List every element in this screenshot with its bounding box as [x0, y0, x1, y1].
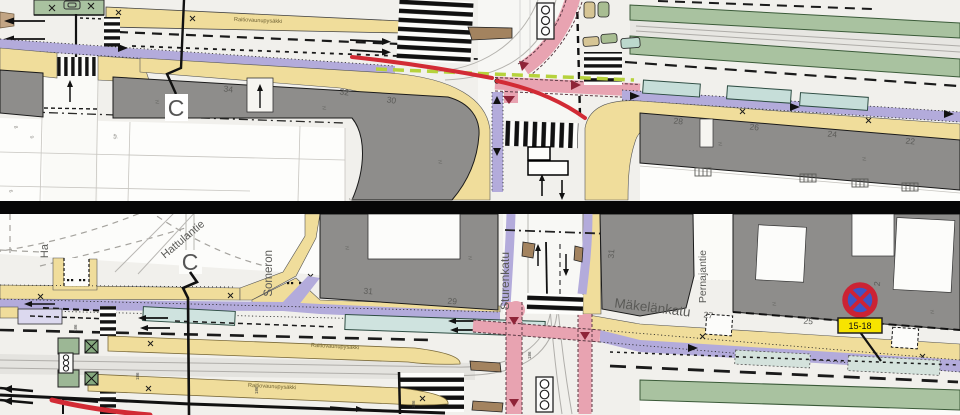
street-name: Ha: [39, 243, 51, 258]
building-number: 28: [673, 116, 684, 127]
lower-plan-canvas: Raitiovaunupysäkki Raitiovaunupysäkki: [0, 214, 960, 415]
car: [583, 36, 600, 46]
building-number: 25: [803, 316, 814, 327]
lower-plan-panel: Raitiovaunupysäkki Raitiovaunupysäkki: [0, 214, 960, 415]
courtyard: [368, 214, 460, 259]
traffic-light-icon: [536, 377, 553, 412]
building-number: 24: [827, 129, 838, 140]
crosswalk: [100, 306, 116, 336]
crosswalk-wide: [396, 0, 473, 64]
tree-icon: [85, 340, 98, 353]
panel-divider: [0, 201, 960, 214]
section-marker-letter: C: [182, 249, 199, 275]
street-name: Someron: [263, 250, 275, 297]
platform-ramp: [522, 242, 535, 258]
building-number: 30: [386, 94, 397, 105]
car: [584, 2, 595, 18]
crosswalk: [527, 293, 584, 315]
platform-ramp: [472, 401, 503, 412]
chainage-label: 186: [254, 386, 259, 394]
gateway-opening: [700, 119, 713, 147]
building-number: 29: [447, 296, 458, 307]
building-number: 22: [905, 136, 916, 147]
section-marker-letter: C: [168, 95, 185, 121]
courtyard: [893, 218, 955, 293]
upper-plan-canvas: Raitiovaunupysäkki: [0, 0, 960, 201]
platform-ramp: [468, 27, 512, 40]
traffic-light-icon: [537, 3, 554, 39]
street-name: Pernajantie: [697, 250, 709, 303]
street-address-number: 27: [703, 309, 714, 320]
upper-plan-panel: Raitiovaunupysäkki: [0, 0, 960, 201]
building-number: 32: [339, 86, 350, 97]
van: [621, 37, 641, 48]
crosswalk: [57, 57, 98, 76]
car: [598, 2, 609, 17]
courtyard: [852, 214, 894, 256]
chainage-label: 186: [411, 400, 416, 408]
platform-ramp: [574, 246, 583, 262]
platform-ramp: [470, 361, 501, 372]
crosswalk: [104, 17, 120, 51]
courtyard: [756, 225, 807, 282]
traffic-light-icon: [59, 353, 73, 373]
tree-icon: [85, 372, 98, 385]
crosswalk: [505, 121, 579, 149]
chainage-label: 186: [135, 372, 140, 380]
building-number: 31: [606, 248, 617, 259]
car: [601, 33, 618, 43]
chainage-label: 186: [73, 324, 78, 332]
building-number: 26: [749, 122, 760, 133]
time-plate-text: 15-18: [848, 321, 871, 331]
chainage-label: 186: [527, 351, 532, 359]
building-block: [0, 70, 43, 117]
plan-sheet: Raitiovaunupysäkki: [0, 0, 960, 415]
building-number: 31: [363, 286, 374, 297]
building-number: 34: [223, 83, 234, 94]
street-name: Sturenkatu: [498, 252, 512, 310]
